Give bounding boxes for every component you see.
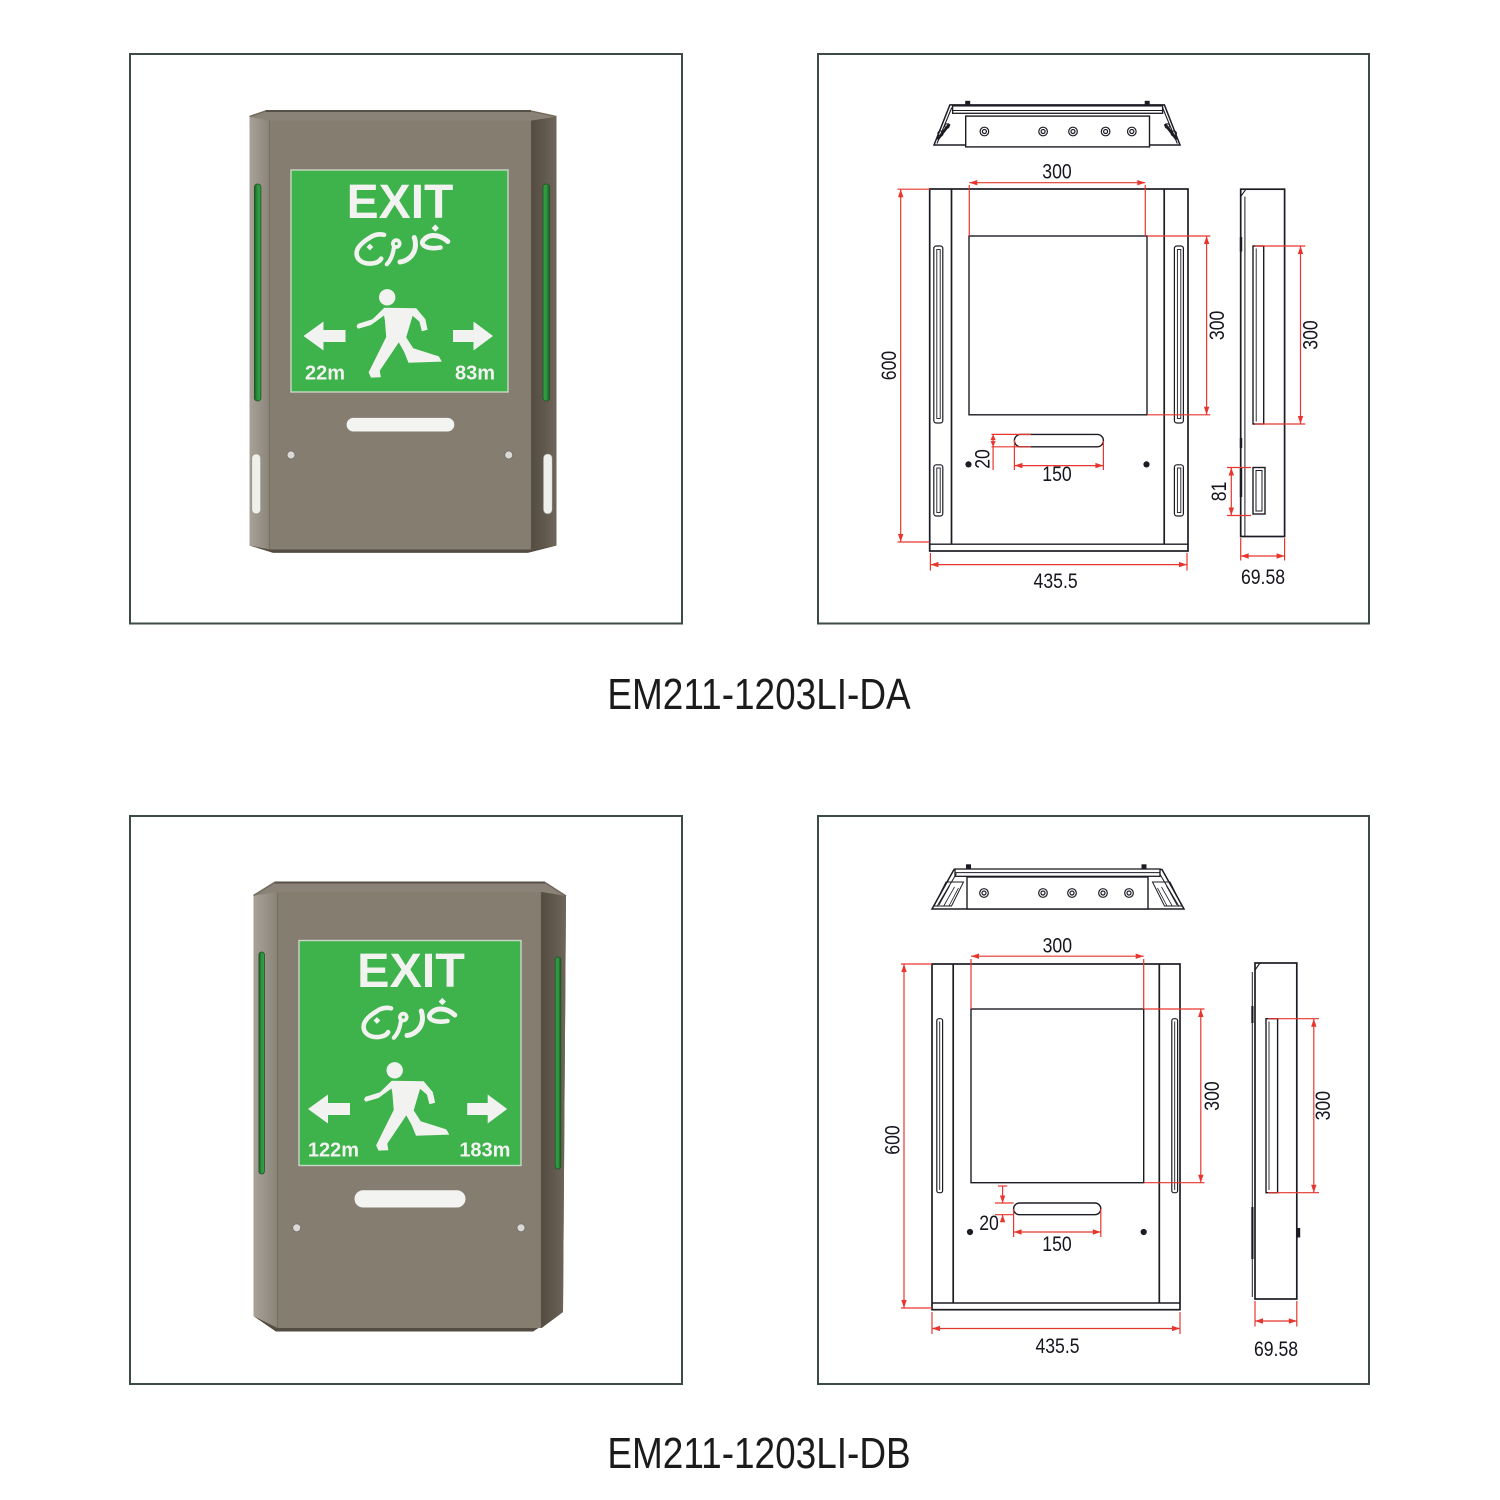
svg-text:22m: 22m (305, 363, 345, 385)
svg-text:300: 300 (1201, 1081, 1225, 1111)
svg-text:81: 81 (1208, 482, 1232, 502)
svg-text:300: 300 (1042, 160, 1072, 184)
svg-text:EXIT: EXIT (347, 176, 454, 229)
svg-text:600: 600 (878, 351, 902, 381)
svg-text:83m: 83m (455, 363, 495, 385)
svg-text:EXIT: EXIT (357, 944, 465, 998)
svg-text:435.5: 435.5 (1034, 570, 1078, 594)
svg-text:20: 20 (979, 1212, 999, 1236)
svg-text:435.5: 435.5 (1035, 1335, 1079, 1359)
svg-text:122m: 122m (308, 1139, 359, 1161)
svg-text:150: 150 (1042, 463, 1072, 487)
svg-text:69.58: 69.58 (1241, 566, 1285, 590)
svg-text:300: 300 (1299, 320, 1323, 350)
svg-text:69.58: 69.58 (1254, 1338, 1298, 1362)
svg-text:183m: 183m (459, 1139, 510, 1161)
svg-text:EM211-1203LI-DA: EM211-1203LI-DA (607, 669, 911, 719)
svg-text:300: 300 (1043, 934, 1073, 958)
svg-text:20: 20 (971, 449, 995, 469)
svg-text:300: 300 (1206, 310, 1230, 340)
svg-text:600: 600 (881, 1125, 905, 1155)
svg-text:EM211-1203LI-DB: EM211-1203LI-DB (607, 1428, 910, 1478)
svg-text:300: 300 (1312, 1091, 1336, 1121)
svg-text:150: 150 (1042, 1233, 1072, 1257)
